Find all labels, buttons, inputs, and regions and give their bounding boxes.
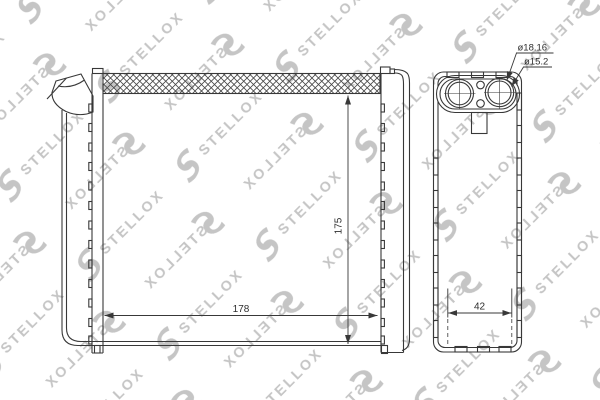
technical-drawing-page: STELLOX STELLOX	[0, 0, 600, 400]
gasket-band	[103, 74, 380, 94]
dim-depth-label: 42	[474, 302, 486, 313]
port-outer-label: ø18.16	[518, 43, 548, 54]
dim-height-label: 175	[334, 217, 345, 234]
watermark-layer	[0, 0, 600, 400]
port-inner-label: ø15.2	[524, 57, 548, 68]
dim-width-label: 178	[233, 304, 250, 315]
heater-core-drawing: STELLOX STELLOX	[0, 0, 600, 400]
